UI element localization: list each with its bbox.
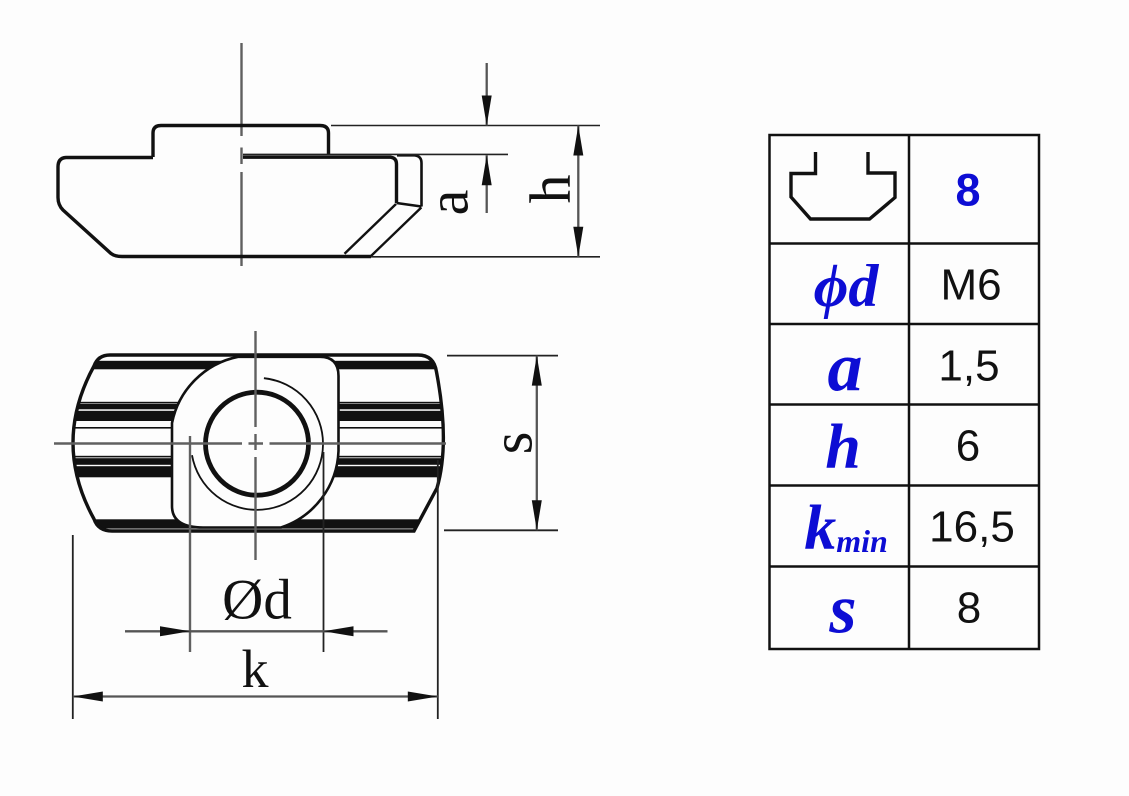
svg-text:6: 6 xyxy=(956,422,980,471)
svg-text:kmin: kmin xyxy=(804,492,888,563)
svg-text:M6: M6 xyxy=(940,261,1001,310)
svg-text:8: 8 xyxy=(955,165,980,216)
svg-text:s: s xyxy=(828,572,856,649)
svg-text:Ød: Ød xyxy=(222,569,292,632)
svg-text:8: 8 xyxy=(957,584,981,633)
svg-text:1,5: 1,5 xyxy=(938,342,999,391)
svg-text:s: s xyxy=(480,432,545,455)
svg-text:ϕd: ϕd xyxy=(814,253,880,319)
svg-text:k: k xyxy=(242,639,269,699)
svg-text:h: h xyxy=(825,411,861,482)
svg-text:a: a xyxy=(828,330,863,407)
svg-text:16,5: 16,5 xyxy=(929,503,1015,552)
svg-text:a: a xyxy=(416,190,481,216)
svg-text:h: h xyxy=(518,175,583,204)
